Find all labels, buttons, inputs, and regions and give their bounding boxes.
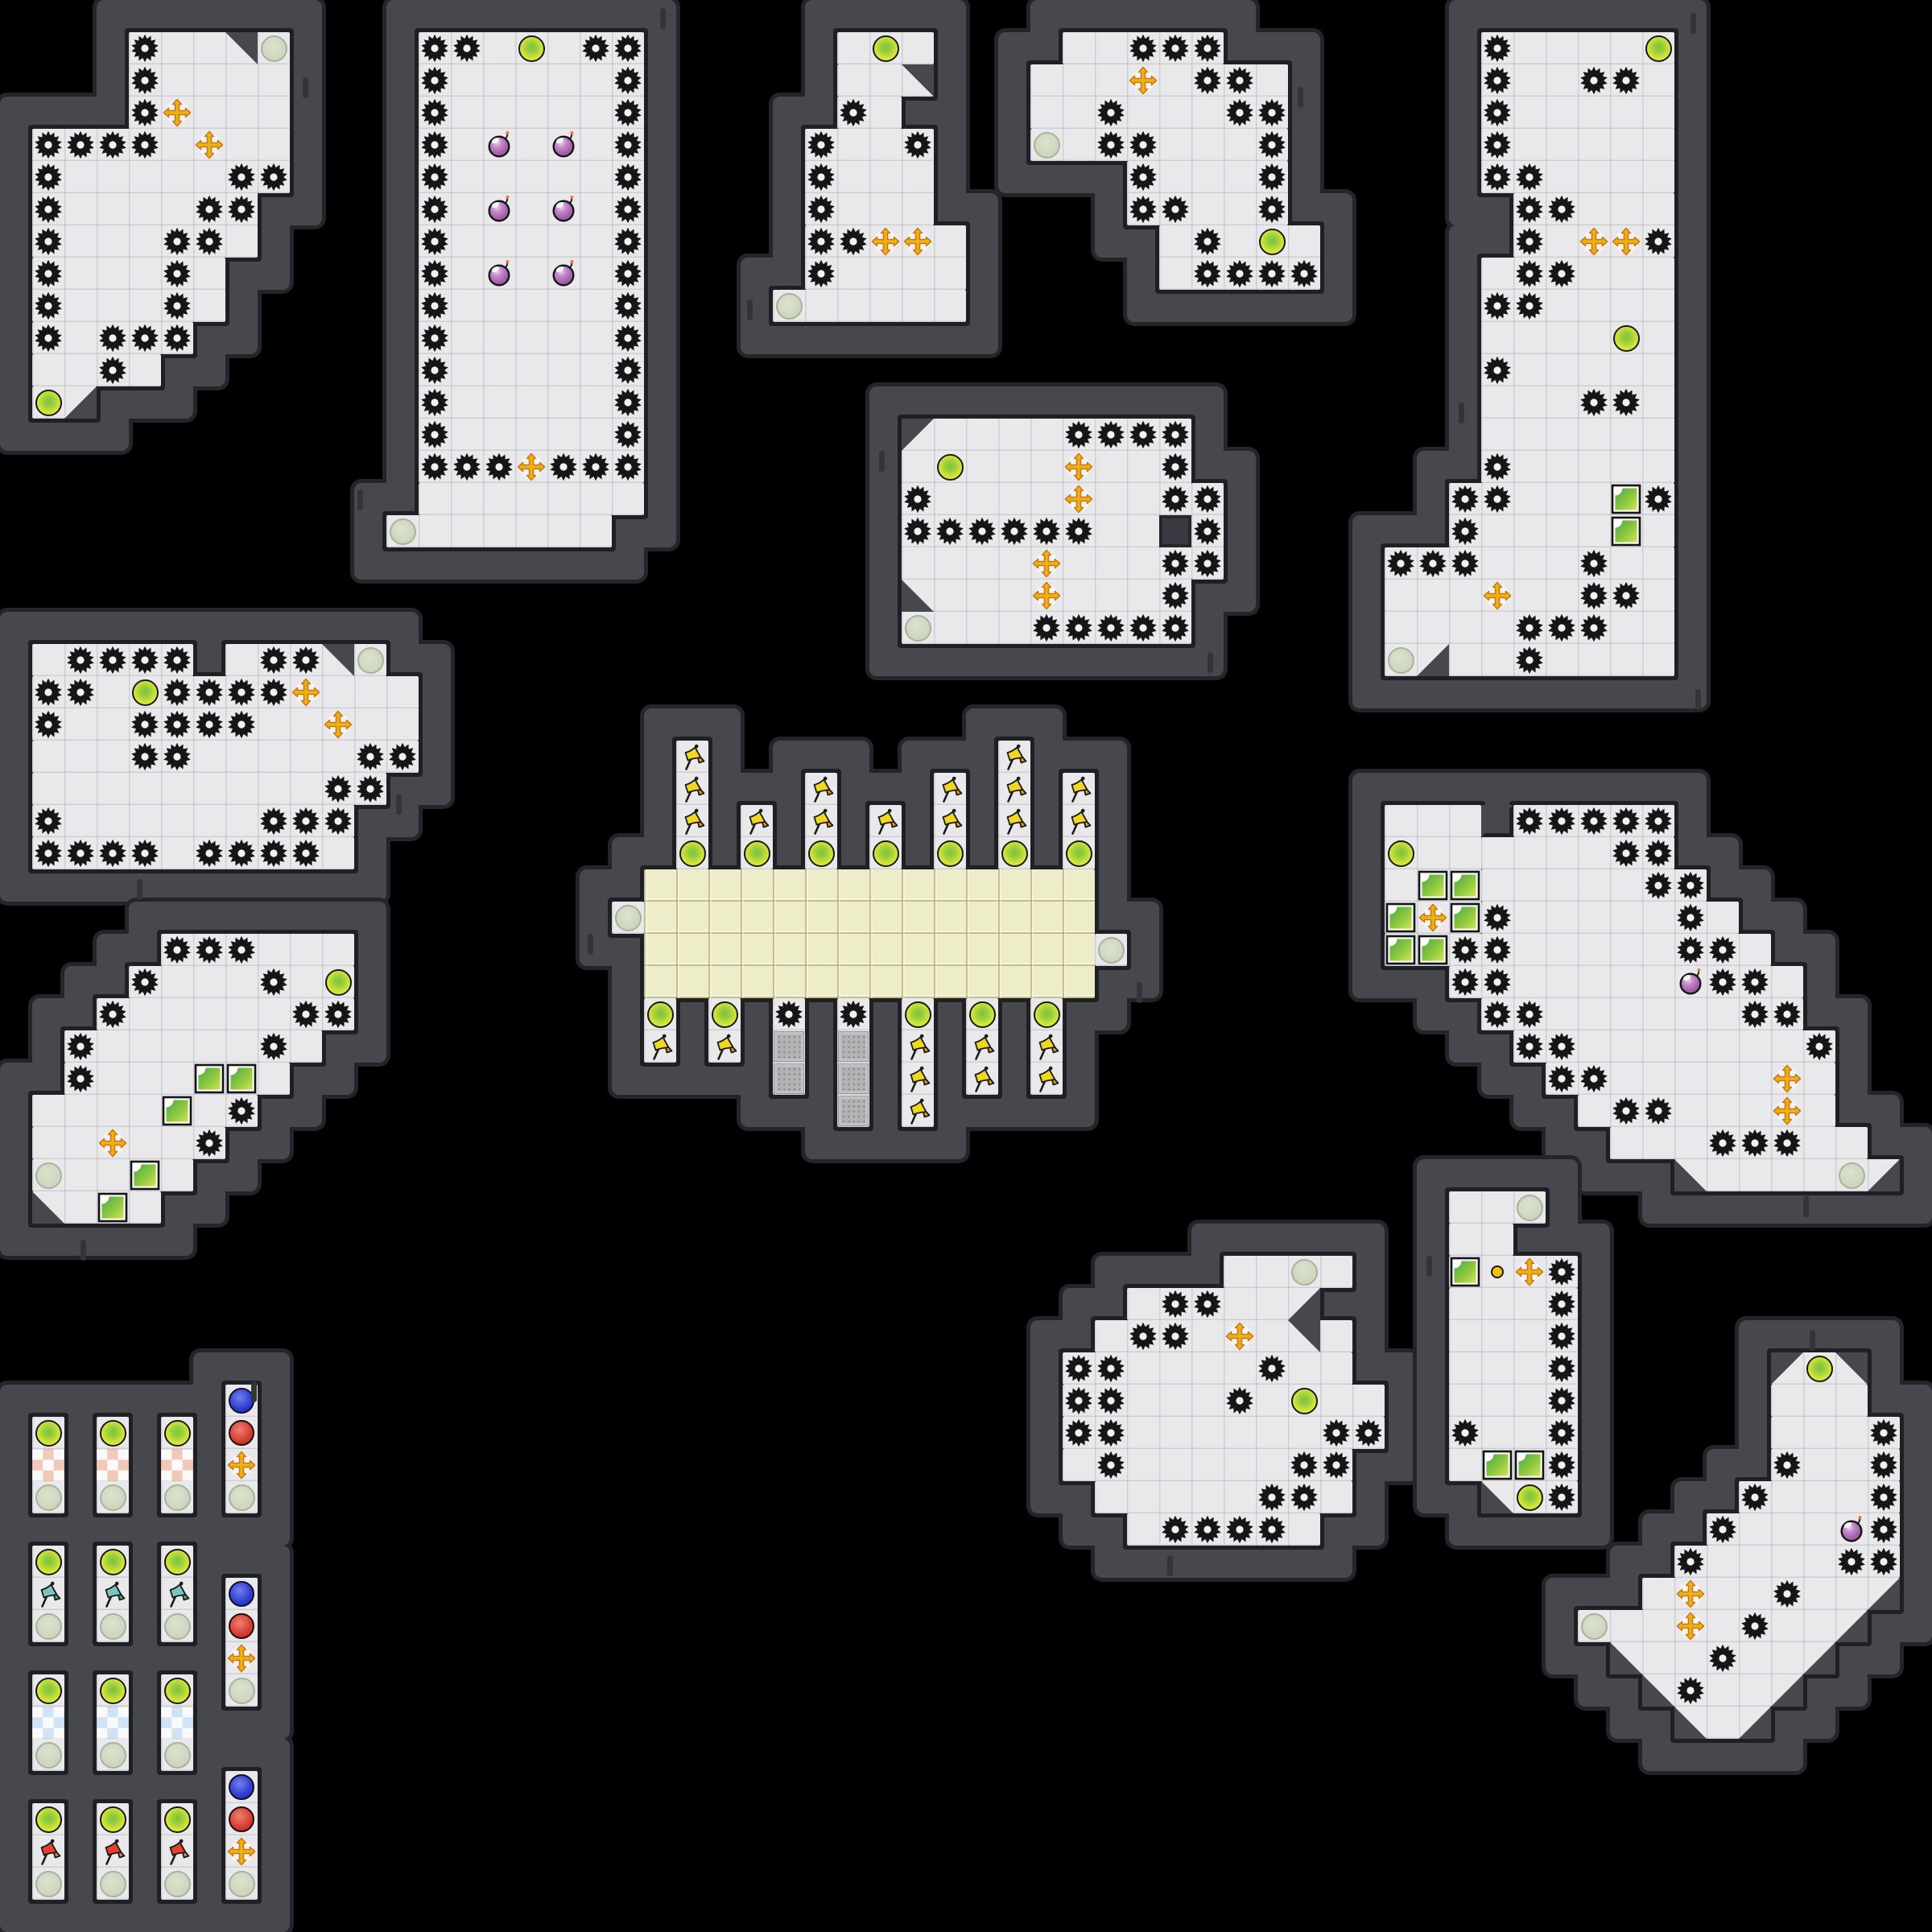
spent-orb[interactable] — [97, 1868, 129, 1900]
level-map[interactable] — [0, 0, 1932, 1932]
saw-icon — [1159, 547, 1191, 580]
goal-orb — [325, 969, 352, 996]
spent-orb — [229, 1484, 255, 1511]
saw-icon — [1449, 483, 1481, 515]
flag-yellow-icon — [966, 1030, 998, 1063]
saw-icon — [451, 451, 483, 483]
saw-icon — [258, 161, 290, 193]
goal-orb[interactable] — [869, 837, 902, 869]
bomb-icon — [1835, 1513, 1868, 1546]
saw-icon — [1642, 837, 1674, 869]
saw-icon — [97, 998, 129, 1030]
saw-icon — [934, 515, 966, 547]
saw-icon — [1642, 1095, 1674, 1127]
floor-tiles[interactable] — [1127, 1288, 1320, 1320]
saw-icon — [1256, 1352, 1288, 1385]
goal-orb[interactable] — [161, 1674, 193, 1707]
spent-orb[interactable] — [354, 644, 386, 676]
spent-orb[interactable] — [225, 1868, 258, 1900]
saw-icon — [1868, 1546, 1900, 1578]
goal-orb[interactable] — [322, 966, 354, 998]
spent-orb — [35, 1871, 62, 1897]
saw-icon — [451, 32, 483, 64]
goal-orb[interactable] — [1513, 1481, 1546, 1513]
saw-icon — [1288, 258, 1320, 290]
spent-orb — [1581, 1613, 1608, 1640]
saw-icon — [1513, 290, 1546, 322]
spent-orb[interactable] — [97, 1739, 129, 1771]
spent-orb — [229, 1678, 255, 1704]
rubble-tile — [774, 1063, 804, 1094]
spent-orb[interactable] — [1835, 1159, 1868, 1191]
goal-orb — [164, 1806, 191, 1833]
grass-tile — [193, 1063, 225, 1095]
flag-yellow-icon — [676, 773, 708, 805]
flag-red-icon — [97, 1835, 129, 1868]
pellet-dot — [1491, 1265, 1504, 1278]
goal-orb — [937, 840, 964, 867]
saw-icon — [1256, 1481, 1288, 1513]
saw-icon — [1159, 1513, 1191, 1546]
goal-orb[interactable] — [644, 998, 676, 1030]
saw-icon — [1610, 580, 1642, 612]
goal-orb — [164, 1678, 191, 1704]
goal-orb[interactable] — [934, 837, 966, 869]
saw-icon — [1095, 1449, 1127, 1481]
spent-orb[interactable] — [902, 612, 934, 644]
checker-blue-tile — [161, 1707, 193, 1739]
saw-icon — [612, 225, 644, 258]
saw-icon — [161, 225, 193, 258]
goal-orb — [1517, 1484, 1543, 1511]
goal-orb — [35, 1420, 62, 1447]
wall-dash — [357, 489, 363, 510]
saw-icon — [419, 225, 451, 258]
flag-yellow-icon — [676, 805, 708, 837]
checker-pink-tile — [97, 1449, 129, 1481]
saw-icon — [1481, 934, 1513, 966]
goal-orb[interactable] — [1385, 837, 1417, 869]
move-cross-icon — [1578, 225, 1610, 258]
saw-icon — [32, 225, 64, 258]
saw-icon — [419, 290, 451, 322]
goal-orb[interactable] — [32, 386, 64, 419]
spent-orb[interactable] — [1288, 1256, 1320, 1288]
goal-orb[interactable] — [708, 998, 741, 1030]
goal-orb — [905, 1001, 931, 1028]
saw-icon — [1288, 1481, 1320, 1513]
saw-icon — [1095, 419, 1127, 451]
goal-orb[interactable] — [32, 1803, 64, 1835]
goal-orb[interactable] — [161, 1417, 193, 1449]
goal-orb[interactable] — [1642, 32, 1674, 64]
saw-icon — [1513, 998, 1546, 1030]
goal-orb[interactable] — [32, 1417, 64, 1449]
saw-icon — [1674, 1674, 1707, 1707]
saw-icon — [1481, 354, 1513, 386]
spent-orb[interactable] — [161, 1481, 193, 1513]
flag-yellow-icon — [676, 741, 708, 773]
saw-icon — [322, 998, 354, 1030]
saw-icon — [290, 644, 322, 676]
flag-yellow-icon — [1063, 773, 1095, 805]
spent-orb[interactable] — [386, 515, 419, 547]
wall-dash — [1695, 689, 1701, 710]
red-marble — [225, 1803, 258, 1835]
saw-icon — [64, 1030, 97, 1063]
goal-orb — [100, 1678, 126, 1704]
saw-icon — [1707, 1513, 1739, 1546]
saw-icon — [1256, 161, 1288, 193]
saw-icon — [1771, 998, 1803, 1030]
checker-pink-tile — [97, 1449, 129, 1481]
spent-orb[interactable] — [612, 902, 644, 934]
saw-icon — [129, 97, 161, 129]
saw-icon — [129, 837, 161, 869]
move-cross-icon — [225, 1642, 258, 1674]
grass-tile — [1385, 934, 1417, 966]
saw-icon — [998, 515, 1030, 547]
red-marble — [229, 1420, 254, 1446]
saw-icon — [161, 644, 193, 676]
floor-tiles[interactable] — [419, 483, 644, 515]
saw-icon — [258, 966, 290, 998]
saw-icon — [612, 161, 644, 193]
goal-orb[interactable] — [1610, 322, 1642, 354]
move-cross-icon — [1063, 451, 1095, 483]
saw-icon — [225, 837, 258, 869]
goal-orb[interactable] — [32, 1674, 64, 1707]
goal-orb[interactable] — [902, 998, 934, 1030]
move-cross-icon — [1224, 1320, 1256, 1352]
goal-orb — [1388, 840, 1414, 867]
saw-icon — [419, 161, 451, 193]
grass-tile — [1449, 902, 1481, 934]
saw-icon — [1513, 644, 1546, 676]
saw-icon — [902, 483, 934, 515]
saw-icon — [97, 837, 129, 869]
move-cross-icon — [515, 451, 547, 483]
saw-icon — [1191, 1288, 1224, 1320]
goal-orb — [35, 1678, 62, 1704]
saw-icon — [1642, 805, 1674, 837]
saw-icon — [1739, 966, 1771, 998]
rubble-tile — [773, 1030, 805, 1063]
saw-icon — [1191, 515, 1224, 547]
goal-orb — [1066, 840, 1092, 867]
saw-icon — [1159, 419, 1191, 451]
spent-orb[interactable] — [97, 1481, 129, 1513]
saw-icon — [419, 64, 451, 97]
saw-icon — [1063, 1417, 1095, 1449]
flag-yellow-icon — [644, 1030, 676, 1063]
spent-orb[interactable] — [258, 32, 290, 64]
saw-icon — [1030, 515, 1063, 547]
goal-orb — [132, 679, 159, 706]
saw-icon — [1159, 483, 1191, 515]
goal-orb[interactable] — [1256, 225, 1288, 258]
floor-tiles[interactable] — [386, 515, 612, 547]
saw-icon — [1256, 97, 1288, 129]
saw-icon — [1578, 64, 1610, 97]
rubble-tile — [838, 1031, 869, 1062]
spent-orb[interactable] — [161, 1868, 193, 1900]
grass-tile — [129, 1159, 161, 1191]
goal-orb[interactable] — [966, 998, 998, 1030]
goal-orb[interactable] — [97, 1674, 129, 1707]
spent-orb[interactable] — [225, 1674, 258, 1707]
spent-orb[interactable] — [1030, 129, 1063, 161]
wall-dash — [1167, 1555, 1173, 1576]
spent-orb[interactable] — [32, 1159, 64, 1191]
saw-icon — [161, 708, 193, 741]
goal-orb[interactable] — [97, 1803, 129, 1835]
goal-orb[interactable] — [741, 837, 773, 869]
saw-icon — [419, 419, 451, 451]
saw-icon — [161, 258, 193, 290]
goal-orb[interactable] — [805, 837, 837, 869]
saw-icon — [1610, 837, 1642, 869]
goal-orb — [969, 1001, 996, 1028]
spent-orb[interactable] — [97, 1610, 129, 1642]
goal-orb[interactable] — [1063, 837, 1095, 869]
spent-orb[interactable] — [773, 290, 805, 322]
rubble-tile — [837, 1030, 869, 1063]
goal-orb — [937, 454, 964, 481]
goal-orb — [35, 1549, 62, 1575]
goal-orb[interactable] — [676, 837, 708, 869]
move-cross-icon — [1030, 580, 1063, 612]
move-cross-icon — [225, 1449, 258, 1481]
bomb-icon — [1674, 966, 1707, 998]
goal-orb — [100, 1420, 126, 1447]
saw-icon — [1224, 97, 1256, 129]
saw-icon — [97, 354, 129, 386]
goal-orb — [712, 1001, 738, 1028]
pit-hole — [1159, 515, 1191, 547]
saw-icon — [612, 32, 644, 64]
saw-icon — [1513, 1030, 1546, 1063]
goal-orb[interactable] — [97, 1546, 129, 1578]
floor-tiles[interactable] — [1771, 1385, 1868, 1417]
move-cross-icon — [902, 225, 934, 258]
spent-orb[interactable] — [32, 1610, 64, 1642]
wall-dash — [1803, 1196, 1809, 1217]
saw-icon — [1191, 32, 1224, 64]
saw-icon — [32, 708, 64, 741]
grass-tile — [97, 1191, 129, 1224]
saw-icon — [322, 773, 354, 805]
saw-icon — [1771, 1127, 1803, 1159]
spent-orb[interactable] — [1513, 1191, 1546, 1224]
wall-dash — [1137, 982, 1142, 1003]
spent-orb[interactable] — [32, 1481, 64, 1513]
saw-icon — [612, 386, 644, 419]
move-cross-icon — [1513, 1256, 1546, 1288]
saw-icon — [1449, 1417, 1481, 1449]
saw-icon — [1417, 547, 1449, 580]
spent-orb — [905, 615, 931, 642]
saw-icon — [1449, 966, 1481, 998]
goal-orb[interactable] — [934, 451, 966, 483]
goal-orb[interactable] — [97, 1417, 129, 1449]
saw-icon — [1481, 290, 1513, 322]
saw-icon — [612, 290, 644, 322]
saw-icon — [1030, 612, 1063, 644]
flag-red-icon — [32, 1835, 64, 1868]
grass-tile — [1417, 934, 1449, 966]
floor-tiles[interactable] — [1578, 1610, 1868, 1642]
hub-floor[interactable] — [644, 869, 1095, 998]
goal-orb[interactable] — [129, 676, 161, 708]
goal-orb — [518, 35, 545, 62]
goal-orb[interactable] — [1288, 1385, 1320, 1417]
goal-orb — [744, 840, 770, 867]
goal-orb — [1034, 1001, 1060, 1028]
saw-icon — [1352, 1417, 1385, 1449]
floor-tiles[interactable] — [1449, 1224, 1513, 1256]
saw-icon — [612, 64, 644, 97]
wall-dash — [1207, 652, 1213, 673]
saw-icon — [32, 258, 64, 290]
saw-icon — [1449, 547, 1481, 580]
floor-tiles[interactable] — [32, 1095, 258, 1127]
saw-icon — [1063, 1385, 1095, 1417]
wall-dash — [137, 879, 142, 900]
saw-icon — [161, 934, 193, 966]
saw-icon — [161, 322, 193, 354]
saw-icon — [225, 193, 258, 225]
move-cross-icon — [1610, 225, 1642, 258]
checker-pink-tile — [32, 1449, 64, 1481]
saw-icon — [1546, 1320, 1578, 1352]
saw-icon — [1449, 515, 1481, 547]
spent-orb[interactable] — [161, 1739, 193, 1771]
flag-yellow-icon — [902, 1030, 934, 1063]
flag-yellow-icon — [902, 1095, 934, 1127]
saw-icon — [32, 837, 64, 869]
move-cross-icon — [1481, 580, 1513, 612]
saw-icon — [1159, 580, 1191, 612]
grass-tile — [1385, 902, 1417, 934]
red-marble — [229, 1613, 254, 1639]
saw-icon — [1127, 193, 1159, 225]
spent-orb — [164, 1871, 191, 1897]
saw-icon — [1320, 1417, 1352, 1449]
flag-yellow-icon — [741, 805, 773, 837]
spent-orb[interactable] — [1385, 644, 1417, 676]
spent-orb[interactable] — [161, 1610, 193, 1642]
spent-orb — [615, 905, 642, 931]
blue-marble — [229, 1581, 254, 1607]
flag-yellow-icon — [998, 805, 1030, 837]
spent-orb[interactable] — [225, 1481, 258, 1513]
move-cross-icon — [1063, 483, 1095, 515]
saw-icon — [129, 64, 161, 97]
spent-orb — [1388, 647, 1414, 674]
spent-orb[interactable] — [1578, 1610, 1610, 1642]
checker-blue-tile — [32, 1707, 64, 1739]
floor-tiles[interactable] — [129, 966, 354, 998]
saw-icon — [225, 676, 258, 708]
goal-orb[interactable] — [998, 837, 1030, 869]
saw-icon — [902, 515, 934, 547]
goal-orb[interactable] — [515, 32, 547, 64]
goal-orb[interactable] — [32, 1546, 64, 1578]
saw-icon — [419, 97, 451, 129]
spent-orb — [1098, 937, 1125, 964]
saw-icon — [32, 161, 64, 193]
move-cross-icon — [225, 1835, 258, 1868]
goal-orb[interactable] — [869, 32, 902, 64]
floor-tiles[interactable] — [1030, 129, 1288, 161]
goal-orb[interactable] — [161, 1546, 193, 1578]
wall-dash — [396, 794, 402, 815]
goal-orb[interactable] — [1803, 1352, 1835, 1385]
saw-icon — [1739, 998, 1771, 1030]
flag-yellow-icon — [998, 773, 1030, 805]
bomb-icon — [547, 129, 580, 161]
grass-tile — [1481, 1449, 1513, 1481]
saw-icon — [1095, 612, 1127, 644]
move-cross-icon — [1674, 1578, 1707, 1610]
goal-orb — [1806, 1356, 1833, 1382]
saw-icon — [1191, 483, 1224, 515]
saw-icon — [290, 805, 322, 837]
saw-icon — [1674, 869, 1707, 902]
red-marble — [225, 1610, 258, 1642]
wall-dash — [747, 299, 753, 320]
saw-icon — [1063, 515, 1095, 547]
saw-icon — [612, 322, 644, 354]
flag-teal-icon — [32, 1578, 64, 1610]
saw-icon — [1868, 1449, 1900, 1481]
floor-tiles[interactable] — [419, 32, 644, 483]
spent-orb[interactable] — [32, 1739, 64, 1771]
grass-tile — [1449, 869, 1481, 902]
goal-orb[interactable] — [1030, 998, 1063, 1030]
spent-orb — [35, 1162, 62, 1189]
spent-orb[interactable] — [32, 1868, 64, 1900]
saw-icon — [419, 322, 451, 354]
saw-icon — [1063, 1352, 1095, 1385]
saw-icon — [1481, 998, 1513, 1030]
spent-orb — [1839, 1162, 1865, 1189]
blue-marble — [229, 1774, 254, 1800]
spent-orb — [1034, 132, 1060, 159]
spent-orb[interactable] — [1095, 934, 1127, 966]
move-cross-icon — [1417, 902, 1449, 934]
bomb-icon — [483, 258, 515, 290]
saw-icon — [1868, 1481, 1900, 1513]
flag-yellow-icon — [1063, 805, 1095, 837]
saw-icon — [1159, 32, 1191, 64]
saw-icon — [580, 451, 612, 483]
saw-icon — [1771, 1449, 1803, 1481]
move-cross-icon — [1127, 64, 1159, 97]
goal-orb — [100, 1549, 126, 1575]
saw-icon — [419, 32, 451, 64]
saw-icon — [290, 998, 322, 1030]
saw-icon — [1481, 902, 1513, 934]
saw-icon — [1513, 225, 1546, 258]
saw-icon — [1546, 1481, 1578, 1513]
saw-icon — [1835, 1546, 1868, 1578]
saw-icon — [612, 129, 644, 161]
goal-orb[interactable] — [161, 1803, 193, 1835]
saw-icon — [1610, 805, 1642, 837]
saw-icon — [1578, 612, 1610, 644]
